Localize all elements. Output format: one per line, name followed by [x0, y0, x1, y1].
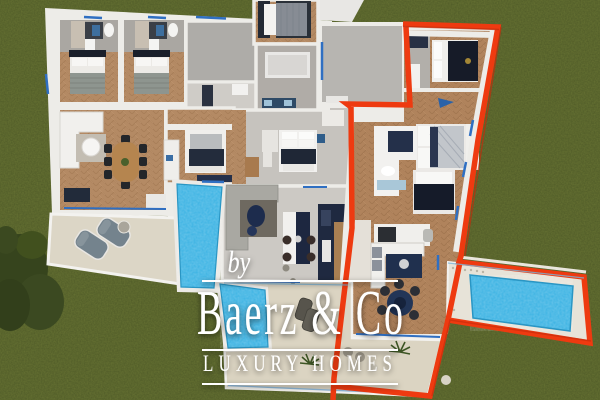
- svg-text:by: by: [228, 244, 251, 279]
- svg-text:Baerz & Co: Baerz & Co: [197, 278, 403, 348]
- svg-text:LUXURY HOMES: LUXURY HOMES: [203, 351, 397, 377]
